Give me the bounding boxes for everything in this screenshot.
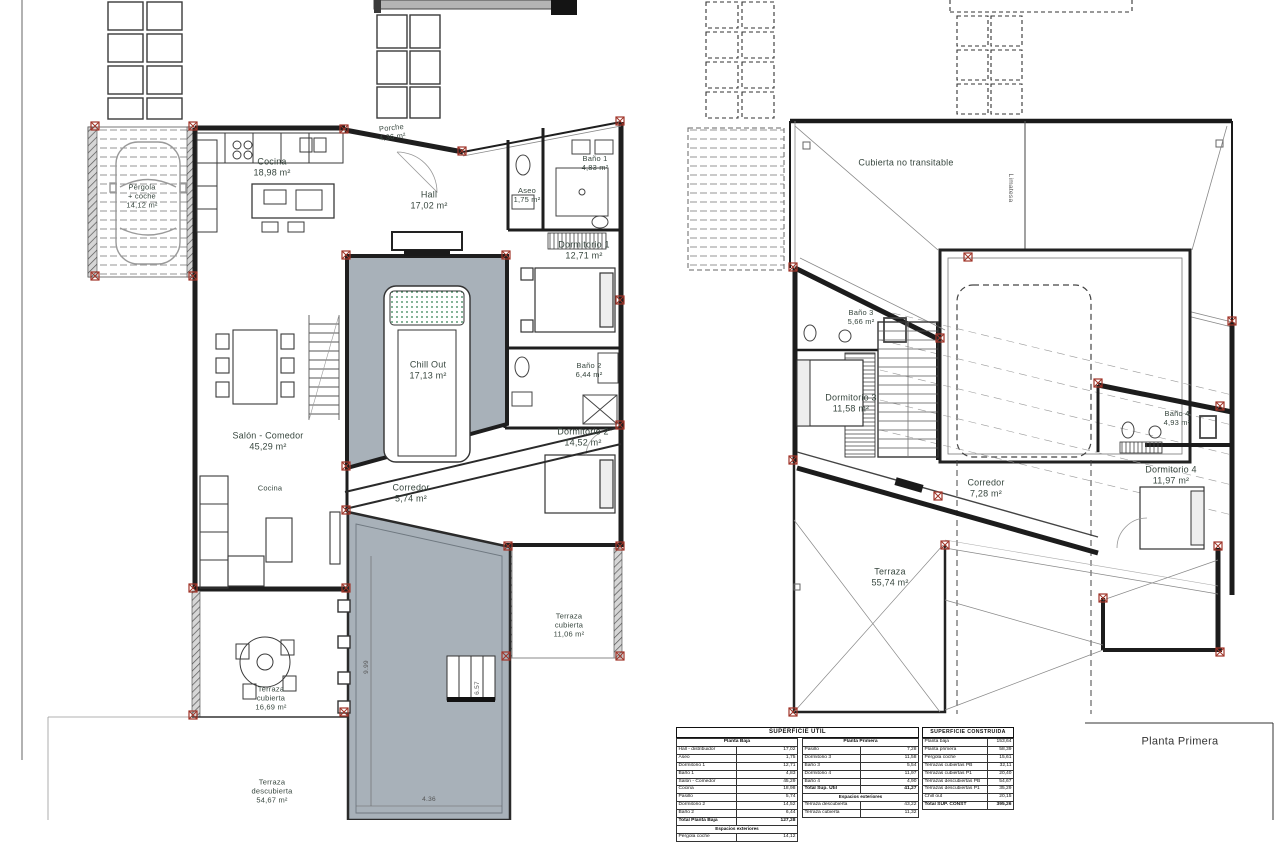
table-row: Aseo1,75: [677, 754, 798, 762]
table-row: Dormitorio 214,52: [677, 802, 798, 810]
plan-left-linework: [22, 0, 624, 820]
table-row: Pérgola coche14,12: [677, 833, 798, 841]
table-planta-primera: Planta Primera Pasillo7,28 Dormitorio 31…: [802, 738, 919, 818]
table-row: Baño 44,90: [802, 778, 918, 786]
floorplan-sheet: { "colors": { "label_text": "#37463e", "…: [0, 0, 1280, 820]
table-row: Pasillo5,74: [677, 794, 798, 802]
table-row: Pasillo7,28: [802, 746, 918, 754]
table-planta-baja: Planta Baja Hall - distribuidor17,02 Ase…: [676, 738, 798, 842]
table-total-row: Total SUP. CONST395,26: [923, 802, 1014, 810]
table-superficie-construida: SUPERFICIE CONSTRUIDA Planta baja153,64 …: [922, 727, 1014, 810]
plan-right-linework: [688, 0, 1273, 820]
table-total-row: Total Planta Baja127,28: [677, 818, 798, 826]
table-row: Terrazas descubiertas P135,29: [923, 786, 1014, 794]
table-row: Baño 26,44: [677, 810, 798, 818]
table-row: Chill out20,15: [923, 794, 1014, 802]
table-row: Dormitorio 112,71: [677, 762, 798, 770]
table-row: Planta primera58,39: [923, 746, 1014, 754]
table-row: Dormitorio 411,97: [802, 770, 918, 778]
table-row: Pérgola coche15,61: [923, 754, 1014, 762]
table-superficie-util-title: SUPERFICIE ÚTIL: [676, 727, 919, 738]
table-superficie-construida-title: SUPERFICIE CONSTRUIDA: [922, 727, 1014, 738]
table-header: Planta Baja: [677, 739, 798, 747]
table-row: Terraza descubierta43,22: [802, 802, 918, 810]
table-row: Terrazas descubiertas PB54,67: [923, 778, 1014, 786]
table-row: Terraza cubierta11,32: [802, 810, 918, 818]
table-superficie-util: SUPERFICIE ÚTIL Planta Baja Hall - distr…: [676, 727, 919, 842]
table-row: Planta baja153,64: [923, 739, 1014, 747]
table-section-row: Espacios exteriores: [677, 825, 798, 833]
table-total-row: Total Sup. Útil41,27: [802, 786, 918, 794]
table-row: Dormitorio 311,58: [802, 754, 918, 762]
table-row: Terrazas cubiertas PB32,11: [923, 762, 1014, 770]
table-row: Baño 35,54: [802, 762, 918, 770]
table-section-row: Espacios exteriores: [802, 794, 918, 802]
table-row: Baño 14,83: [677, 770, 798, 778]
table-header: Planta Primera: [802, 739, 918, 747]
table-row: Salón - Comedor45,29: [677, 778, 798, 786]
table-row: Hall - distribuidor17,02: [677, 746, 798, 754]
floorplan-linework: [0, 0, 1280, 820]
table-row: Cocina18,98: [677, 786, 798, 794]
table-row: Terrazas cubiertas P120,40: [923, 770, 1014, 778]
